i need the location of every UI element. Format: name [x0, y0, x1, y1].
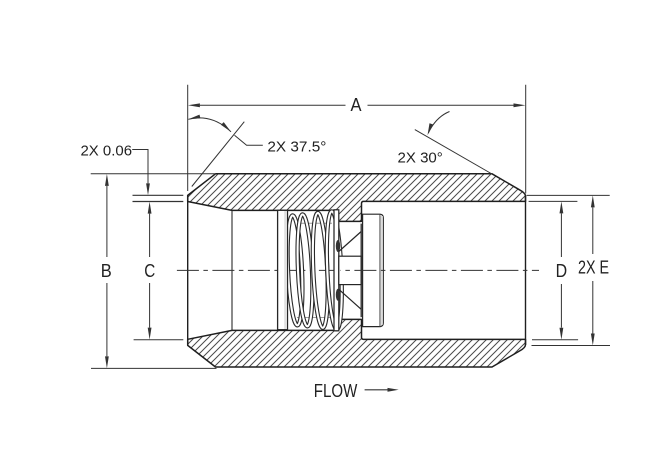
svg-text:D: D [556, 261, 568, 281]
svg-text:2X E: 2X E [578, 258, 609, 278]
svg-text:2X 30°: 2X 30° [398, 149, 443, 166]
svg-text:A: A [351, 95, 362, 115]
svg-text:2X 0.06: 2X 0.06 [81, 142, 133, 159]
svg-text:C: C [144, 261, 155, 281]
svg-text:FLOW: FLOW [314, 380, 358, 401]
svg-text:B: B [101, 261, 112, 281]
svg-text:2X 37.5°: 2X 37.5° [267, 138, 326, 155]
